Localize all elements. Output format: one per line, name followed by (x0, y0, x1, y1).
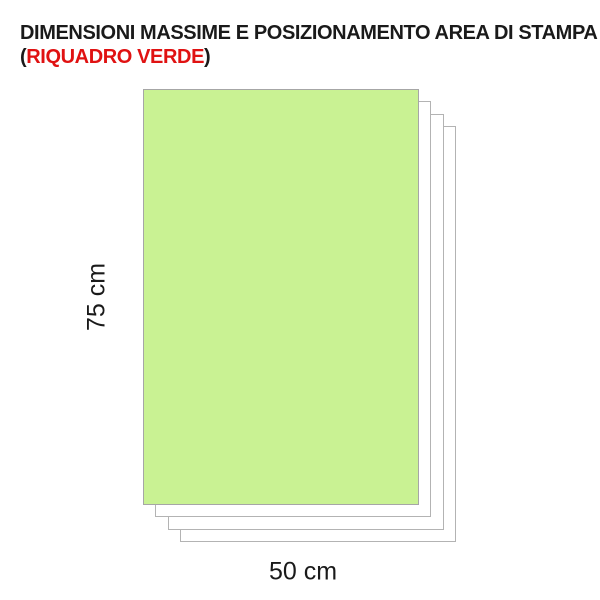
title-paren-close: ) (204, 46, 210, 68)
title-line1: DIMENSIONI MASSIME E POSIZIONAMENTO AREA… (20, 22, 597, 44)
title-line2: (RIQUADRO VERDE) (20, 45, 590, 69)
print-area-diagram: DIMENSIONI MASSIME E POSIZIONAMENTO AREA… (0, 0, 600, 600)
green-print-area-rect (143, 89, 419, 505)
page-title: DIMENSIONI MASSIME E POSIZIONAMENTO AREA… (20, 21, 590, 69)
width-dimension-label: 50 cm (269, 558, 337, 587)
height-dimension-label: 75 cm (83, 263, 112, 331)
title-highlight: RIQUADRO VERDE (26, 46, 204, 68)
